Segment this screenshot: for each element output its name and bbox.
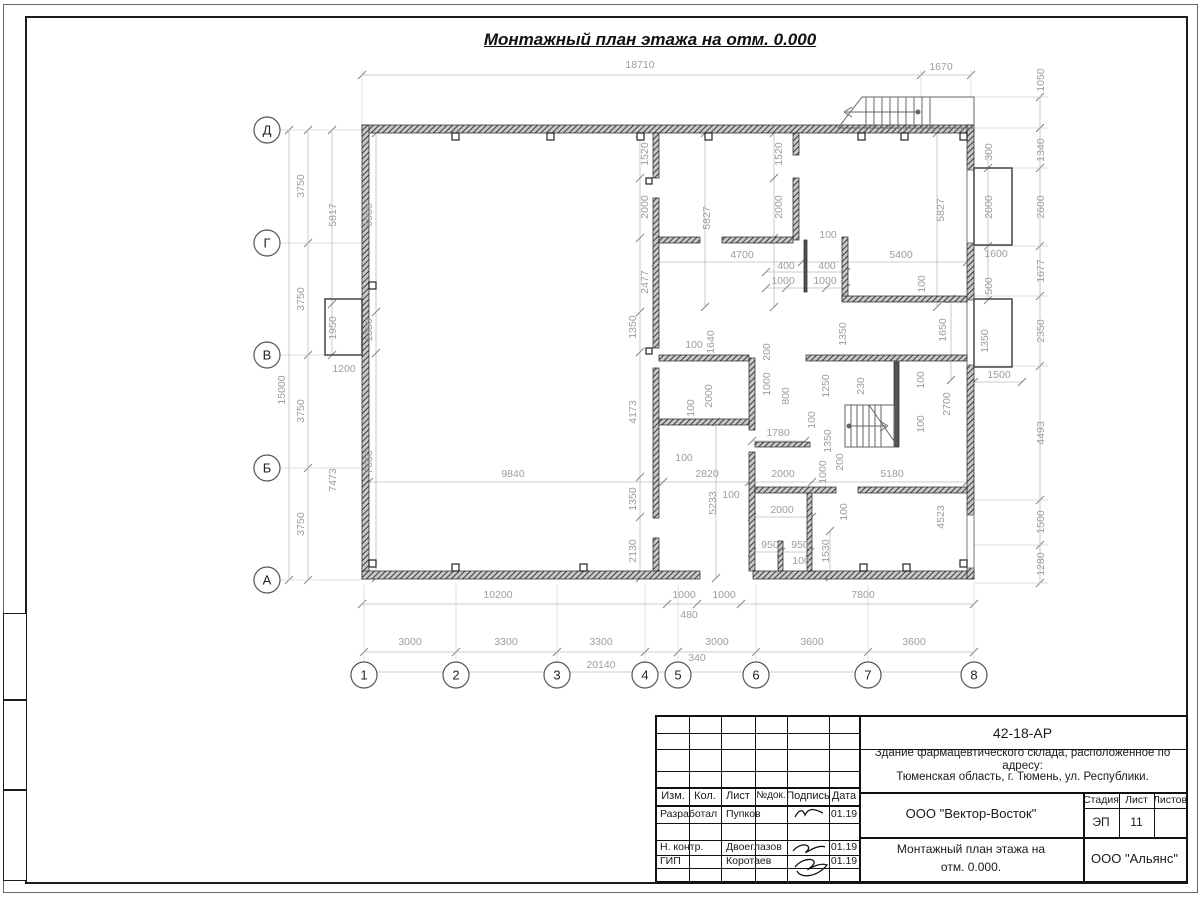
tb-col-list: Лист (721, 787, 755, 805)
dimension-label: 2000 (771, 468, 795, 480)
signature-scribble (789, 805, 829, 823)
wall (749, 452, 755, 571)
dimension-label: 5180 (880, 468, 904, 480)
dimension-label: 2350 (1035, 319, 1047, 343)
dimension-label: 4523 (935, 505, 947, 529)
tb-role-developer: Разработал (657, 805, 724, 823)
wall-bottom (362, 571, 700, 579)
wall (659, 355, 749, 361)
tb-col-podpis: Подпись (787, 787, 829, 805)
dimension-label: 950 (761, 539, 779, 551)
dimension-label: 1600 (984, 248, 1008, 260)
dimension-label: 400 (818, 260, 836, 272)
axis-label: 2 (452, 668, 459, 683)
tb-organization: ООО "Вектор-Восток" (859, 792, 1083, 837)
dimension-label: 2600 (1035, 195, 1047, 219)
wall-right (967, 568, 974, 579)
dimension-label: 100 (838, 503, 850, 521)
dimension-label: 400 (777, 260, 795, 272)
tb-stage-label: Стадия (1083, 792, 1119, 808)
dimension-lines-layer (280, 70, 1048, 676)
dimension-label: 1950 (327, 316, 339, 340)
dimension-label: 1000 (817, 460, 829, 484)
opening (967, 170, 974, 243)
wall-right (967, 125, 974, 170)
dimension-label: 1350 (822, 429, 834, 453)
axis-label: 3 (553, 668, 560, 683)
dimension-label: 5827 (701, 206, 713, 230)
wall (793, 178, 799, 240)
wall (653, 198, 659, 348)
dimension-label: 3750 (295, 512, 307, 536)
tb-name-ncontrol: Двоеглазов (723, 840, 790, 855)
dimension-label: 2477 (639, 270, 651, 294)
dimension-label: 100 (819, 229, 837, 241)
dimension-label: 7473 (327, 468, 339, 492)
drawing-sheet: { "sheet": { "drawing_title": "Монтажный… (0, 0, 1200, 900)
wall (804, 240, 807, 292)
dimension-label: 1530 (820, 539, 832, 563)
axis-label: Д (263, 123, 272, 138)
exterior-stair (838, 97, 974, 128)
wall (755, 487, 836, 493)
dimension-label: 1200 (332, 363, 356, 375)
dimension-label: 200 (834, 453, 846, 471)
dimension-label: 1050 (1035, 68, 1047, 92)
dimension-label: 1670 (929, 61, 953, 73)
dimension-label: 1500 (987, 369, 1011, 381)
dimension-label: 2000 (770, 504, 794, 516)
dimension-label: 18710 (625, 59, 654, 71)
dimension-label: 3600 (902, 636, 926, 648)
dimension-label: 100 (915, 371, 927, 389)
dimension-label: 2000 (639, 195, 651, 219)
dimension-label: 1000 (813, 275, 837, 287)
wall (749, 358, 755, 430)
wall (653, 133, 659, 178)
wall (653, 538, 659, 571)
dimension-label: 1650 (937, 318, 949, 342)
dimension-label: 100 (915, 415, 927, 433)
dimension-label: 1350 (979, 329, 991, 353)
wall (653, 368, 659, 518)
dimension-label: 1520 (773, 142, 785, 166)
dimension-label: 100 (916, 275, 928, 293)
annex-outlines (325, 168, 1012, 367)
wall-left (362, 125, 369, 579)
dimension-label: 1350 (627, 315, 639, 339)
dimension-label: 3300 (494, 636, 518, 648)
dimension-label: 1350 (627, 487, 639, 511)
dimension-label: 230 (855, 377, 867, 395)
wall (842, 237, 848, 299)
walls-layer (362, 125, 974, 579)
dimension-label: 1000 (771, 275, 795, 287)
dimension-label: 340 (688, 652, 706, 664)
dimension-label: 1000 (672, 589, 696, 601)
tb-sheet-label: Лист (1119, 792, 1154, 808)
tb-date-developer: 01.19 (829, 805, 859, 823)
dimension-label: 9840 (501, 468, 525, 480)
opening (967, 515, 974, 568)
dimension-label: 800 (780, 387, 792, 405)
dimension-label: 10200 (483, 589, 512, 601)
tb-role-gip: ГИП (657, 855, 724, 868)
dimension-label: 480 (680, 609, 698, 621)
axis-label: 7 (864, 668, 871, 683)
dimension-label: 3000 (398, 636, 422, 648)
dimension-label: 5400 (889, 249, 913, 261)
wall (659, 419, 749, 425)
wall (806, 355, 967, 361)
wall-right (967, 243, 974, 300)
dimension-label: 3300 (589, 636, 613, 648)
dimension-label: 100 (792, 555, 810, 567)
dimension-label: 5233 (707, 491, 719, 515)
dimension-label: 500 (983, 277, 995, 295)
tb-col-izm: Изм. (657, 787, 689, 805)
dimension-label: 7650 (363, 450, 375, 474)
dimension-label: 1280 (1035, 552, 1047, 576)
columns-layer (369, 133, 967, 571)
dimension-label: 2820 (695, 468, 719, 480)
dimension-label: 100 (675, 452, 693, 464)
tb-sheet-title-2: отм. 0.000. (859, 857, 1083, 879)
interior-stair (845, 405, 894, 447)
tb-col-ndok: №док. (755, 787, 787, 805)
dimension-label: 100 (685, 339, 703, 351)
opening (967, 300, 974, 365)
dimension-label: 1350 (837, 322, 849, 346)
wall (842, 296, 967, 302)
dimension-label: 4700 (730, 249, 754, 261)
wall (722, 237, 793, 243)
dimension-label: 5827 (935, 198, 947, 222)
dimension-label: 2700 (941, 392, 953, 416)
dimension-label: 200 (761, 343, 773, 361)
tb-date-ncontrol: 01.19 (829, 840, 859, 855)
tb-date-gip: 01.19 (829, 855, 859, 868)
dimension-label: 1000 (712, 589, 736, 601)
axis-label: В (263, 348, 272, 363)
tb-role-ncontrol: Н. контр. (657, 840, 724, 855)
dimension-label: 1500 (1035, 510, 1047, 534)
signature-scribble (787, 837, 831, 881)
wall (755, 442, 810, 447)
dimension-label: 300 (983, 143, 995, 161)
title-block: Изм. Кол. Лист №док. Подпись Дата Разраб… (655, 715, 1188, 883)
dimension-label: 1640 (705, 330, 717, 354)
tb-name-gip: Коротаев (723, 855, 790, 868)
dimension-label: 3750 (295, 287, 307, 311)
dimension-label: 7800 (851, 589, 875, 601)
tb-name-developer: Пупков (723, 805, 790, 823)
dimension-label: 2000 (703, 384, 715, 408)
dimension-label: 15000 (276, 375, 288, 404)
tb-sheet-number: 11 (1119, 808, 1154, 837)
dimension-label: 2000 (983, 195, 995, 219)
axis-label: 1 (360, 668, 367, 683)
dimension-label: 3000 (705, 636, 729, 648)
axis-label: Г (263, 236, 270, 251)
wall (858, 487, 967, 493)
dimension-label: 2000 (773, 195, 785, 219)
dimension-label: 2130 (627, 539, 639, 563)
dimension-label: 20140 (586, 659, 615, 671)
dimension-label: 3750 (295, 174, 307, 198)
tb-doc-number: 42-18-АР (859, 717, 1186, 749)
dimension-label: 100 (806, 411, 818, 429)
wall (894, 362, 899, 447)
axis-label: 5 (674, 668, 681, 683)
wall-right (967, 365, 974, 515)
dimension-label: 100 (722, 489, 740, 501)
dimension-label: 1000 (761, 372, 773, 396)
dimension-label: 950 (791, 539, 809, 551)
wall-bottom (753, 571, 974, 579)
tb-project-desc-2: Тюменская область, г. Тюмень, ул. Респуб… (859, 767, 1186, 789)
tb-stage-value: ЭП (1083, 808, 1119, 837)
dimension-label: 4493 (1035, 421, 1047, 445)
axis-label: Б (263, 461, 272, 476)
dimension-label: 1340 (1035, 138, 1047, 162)
axis-label: А (263, 573, 272, 588)
tb-sheets-label: Листов (1154, 792, 1186, 808)
dimension-label: 1520 (639, 142, 651, 166)
tb-col-data: Дата (829, 787, 859, 805)
tb-col-kol: Кол. (689, 787, 721, 805)
axis-label: 4 (641, 668, 648, 683)
wall (793, 133, 799, 155)
axis-label: 8 (970, 668, 977, 683)
dimension-label: 6000 (363, 203, 375, 227)
dimension-label: 5817 (327, 203, 339, 227)
dimension-label: 1780 (766, 427, 790, 439)
axis-label: 6 (752, 668, 759, 683)
dimension-label: 3600 (800, 636, 824, 648)
dimension-label: 100 (685, 399, 697, 417)
dimension-label: 1350 (363, 318, 375, 342)
tb-contractor: ООО "Альянс" (1083, 837, 1186, 881)
dimension-label: 4173 (627, 400, 639, 424)
dimension-label: 1677 (1035, 259, 1047, 283)
dimension-label: 3750 (295, 399, 307, 423)
dimension-label: 1250 (820, 374, 832, 398)
wall (659, 237, 700, 243)
